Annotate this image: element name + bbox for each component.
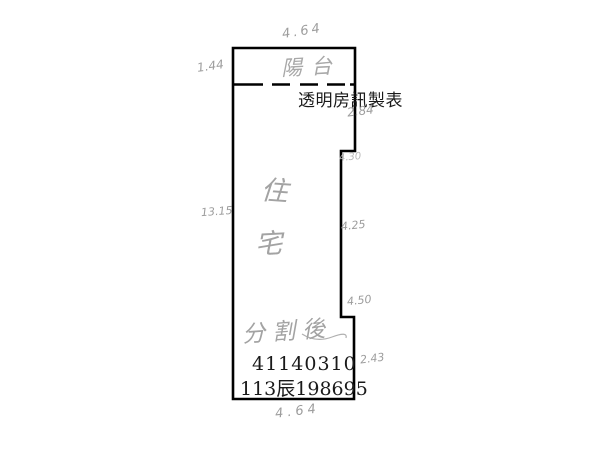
- floorplan-canvas: 透明房訊製表 41140310 113辰198695 陽台 住 宅 分割後 4.…: [0, 0, 602, 452]
- registration-number: 113辰198695: [240, 374, 368, 401]
- parcel-number: 41140310: [252, 353, 357, 375]
- dimension-left-middle: 13.15: [201, 204, 233, 219]
- balcony-label: 陽台: [280, 49, 341, 82]
- unit-label-char-1: 住: [260, 168, 290, 209]
- dimension-right-2: 4.30: [339, 151, 362, 164]
- dimension-right-4: 4.50: [346, 293, 372, 308]
- subdivision-note: 分割後: [241, 309, 333, 349]
- unit-label-char-2: 宅: [254, 221, 283, 261]
- dimension-right-3: 4.25: [340, 218, 366, 233]
